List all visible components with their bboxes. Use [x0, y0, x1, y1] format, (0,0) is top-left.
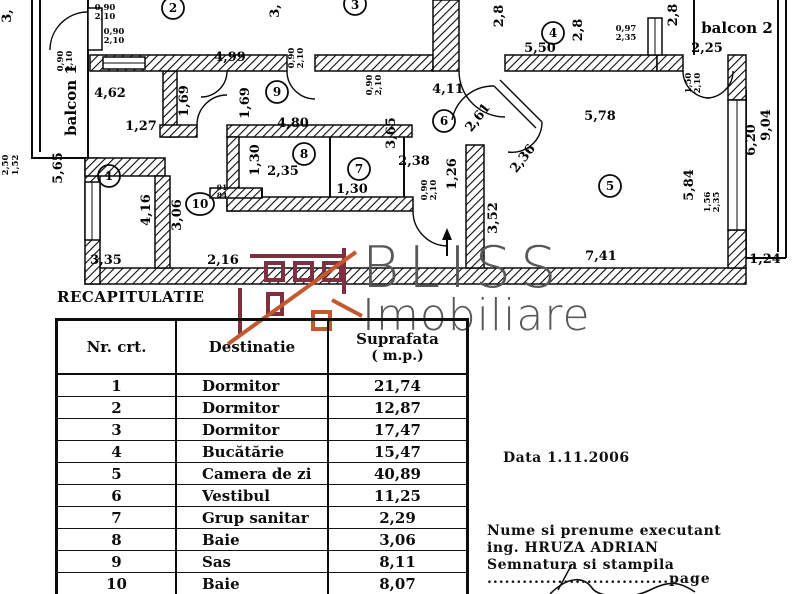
- dim: 2,50: [1, 155, 11, 176]
- room-label-1: 1: [105, 169, 113, 183]
- dim: 3,: [268, 4, 283, 18]
- cell-nr: 5: [57, 463, 177, 485]
- dim: 9,04: [759, 109, 774, 141]
- cell-dest: Baie: [176, 529, 328, 551]
- dim: 3,65: [384, 117, 399, 149]
- table-row: 1Dormitor21,74: [57, 374, 468, 397]
- table-row: 2Dormitor12,87: [57, 397, 468, 419]
- dim: 1,30: [336, 182, 368, 197]
- balcony-2-label: balcon 2: [701, 19, 773, 37]
- door-label: 2,10: [693, 73, 703, 94]
- dim: 4,80: [277, 116, 309, 131]
- dim: 2,8: [666, 4, 681, 27]
- door-label: 2,35: [712, 192, 722, 213]
- dim: 1,69: [177, 85, 192, 117]
- col-header-suprafata-line1: Suprafata: [329, 330, 466, 348]
- dim: 3,52: [486, 202, 501, 234]
- col-header-dest: Destinatie: [176, 320, 328, 375]
- cell-nr: 4: [57, 441, 177, 463]
- col-header-suprafata-line2: ( m.p.): [329, 348, 466, 364]
- cell-nr: 8: [57, 529, 177, 551]
- col-header-nr: Nr. crt.: [57, 320, 177, 375]
- cell-mp: 40,89: [328, 463, 468, 485]
- cell-mp: 15,47: [328, 441, 468, 463]
- room-label-5: 5: [606, 179, 614, 193]
- dim: 5,50: [524, 41, 556, 56]
- room-label-4: 4: [549, 26, 557, 40]
- table-row: 9Sas8,11: [57, 551, 468, 573]
- room-label-6: 6: [440, 114, 448, 128]
- cell-mp: 12,87: [328, 397, 468, 419]
- balcony-1-label: balcon 1: [62, 64, 80, 136]
- signature-dotted-line: ...............................page: [487, 571, 711, 587]
- room-label-7: 7: [355, 162, 363, 176]
- cell-mp: 17,47: [328, 419, 468, 441]
- table-row: 7Grup sanitar2,29: [57, 507, 468, 529]
- table-row: 3Dormitor17,47: [57, 419, 468, 441]
- dim: 1,30: [248, 144, 263, 176]
- cell-dest: Grup sanitar: [176, 507, 328, 529]
- door-label: 2,10: [95, 12, 116, 22]
- dim: 4,16: [139, 194, 154, 226]
- dim: 2,25: [691, 41, 723, 56]
- cell-dest: Camera de zi: [176, 463, 328, 485]
- room-label-9: 9: [273, 85, 281, 99]
- dim: 4,62: [94, 86, 126, 101]
- col-header-suprafata: Suprafata ( m.p.): [328, 320, 468, 375]
- table-header-row: Nr. crt. Destinatie Suprafata ( m.p.): [57, 320, 468, 375]
- table-row: 5Camera de zi40,89: [57, 463, 468, 485]
- cell-mp: 11,25: [328, 485, 468, 507]
- dim: 1,69: [238, 87, 253, 119]
- dim: 2,36: [508, 142, 539, 176]
- executor-label: Nume si prenume executant: [487, 523, 721, 539]
- dim: 7,41: [585, 249, 617, 264]
- dim: 1,27: [125, 119, 157, 134]
- recap-table: Nr. crt. Destinatie Suprafata ( m.p.) 1D…: [55, 318, 469, 594]
- cell-dest: Sas: [176, 551, 328, 573]
- dim: 1,24: [749, 252, 781, 267]
- door-label: 2,10: [104, 36, 125, 46]
- date-line: Data 1.11.2006: [503, 450, 630, 466]
- dim: 4,99: [214, 50, 246, 65]
- dim: 2,61: [463, 101, 494, 135]
- dim: 3,35: [90, 253, 122, 268]
- cell-dest: Vestibul: [176, 485, 328, 507]
- cell-mp: 21,74: [328, 374, 468, 397]
- dim: 2,8: [571, 19, 586, 42]
- dim: 2,35: [267, 164, 299, 179]
- door-label: 2,10: [374, 75, 384, 96]
- dimensions-horizontal: 4,99 5,50 2,25 4,62 4,11 5,78 1,27 4,80 …: [90, 41, 781, 268]
- dim: 5,65: [51, 152, 66, 184]
- executor-name: ing. HRUZA ADRIAN: [487, 540, 658, 556]
- cell-nr: 7: [57, 507, 177, 529]
- dim: 3,: [0, 9, 15, 23]
- room-label-10: 10: [192, 197, 209, 211]
- door-label: 2,10: [296, 48, 306, 69]
- door-label: 2,10: [429, 180, 439, 201]
- dim: 5,78: [584, 109, 616, 124]
- table-row: 4Bucătărie15,47: [57, 441, 468, 463]
- door-label: 84: [217, 191, 227, 200]
- cell-nr: 9: [57, 551, 177, 573]
- cell-dest: Dormitor: [176, 419, 328, 441]
- cell-nr: 6: [57, 485, 177, 507]
- brand-name: BLISS: [362, 240, 565, 297]
- recap-title: RECAPITULATIE: [57, 288, 205, 306]
- cell-dest: Dormitor: [176, 374, 328, 397]
- cell-dest: Bucătărie: [176, 441, 328, 463]
- cell-mp: 8,11: [328, 551, 468, 573]
- table-row: 10Baie8,07: [57, 573, 468, 594]
- door-label: 2,35: [616, 33, 637, 43]
- cell-nr: 3: [57, 419, 177, 441]
- room-label-3: 3: [351, 0, 359, 12]
- dim: 2,16: [207, 253, 239, 268]
- dim: 1,52: [11, 155, 21, 176]
- cell-nr: 1: [57, 374, 177, 397]
- dim: 3,06: [170, 199, 185, 231]
- dim: 4,11: [432, 82, 464, 97]
- room-label-8: 8: [300, 147, 308, 161]
- dim: 2,38: [398, 154, 430, 169]
- cell-nr: 2: [57, 397, 177, 419]
- dim: 6,20: [744, 124, 759, 156]
- dim: 5,84: [682, 169, 697, 201]
- dim: 2,8: [492, 5, 507, 28]
- cell-dest: Dormitor: [176, 397, 328, 419]
- dim: 1,26: [445, 158, 460, 190]
- cell-nr: 10: [57, 573, 177, 594]
- cell-mp: 2,29: [328, 507, 468, 529]
- room-label-2: 2: [169, 1, 177, 15]
- table-row: 6Vestibul11,25: [57, 485, 468, 507]
- table-row: 8Baie3,06: [57, 529, 468, 551]
- cell-mp: 8,07: [328, 573, 468, 594]
- cell-mp: 3,06: [328, 529, 468, 551]
- cell-dest: Baie: [176, 573, 328, 594]
- apartment-floor-plan-document: 1 2 3 4 5 6 7 8 9 10 4,99 5,50 2,25 4,62…: [0, 0, 792, 594]
